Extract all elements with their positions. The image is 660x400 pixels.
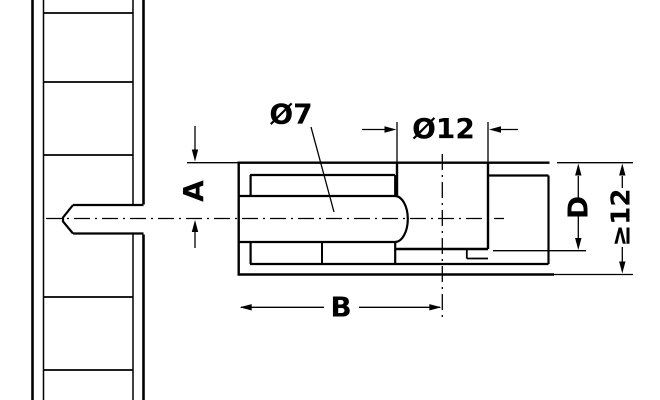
arrowhead-left (489, 126, 501, 132)
arrowhead-up (192, 220, 198, 232)
arrowhead-up (619, 164, 625, 176)
arrowhead-right (429, 304, 441, 310)
technical-drawing: A Ø7 Ø12 B D ≥12 (0, 0, 660, 400)
arrowhead-up (575, 164, 581, 176)
arrowhead-down (192, 150, 198, 162)
arrowhead-right (385, 126, 397, 132)
label-axis-distance: A (177, 180, 210, 202)
label-bolt-hole-diameter: Ø7 (269, 98, 312, 131)
label-cam-hole-diameter: Ø12 (412, 112, 475, 145)
centerlines (46, 154, 504, 317)
bolt-tip (63, 205, 144, 234)
label-min-panel-thickness: ≥12 (607, 189, 637, 247)
drawing-canvas: A Ø7 Ø12 B D ≥12 (0, 0, 660, 400)
label-drilling-depth: D (562, 196, 595, 219)
arrowhead-down (575, 238, 581, 250)
bolt-hole-callout (311, 127, 334, 212)
arrowhead-left (240, 304, 252, 310)
wall-panel (33, 0, 144, 400)
leader-line (311, 127, 334, 212)
wall-core-lines (44, 13, 133, 370)
arrowhead-down (619, 262, 625, 274)
label-bolt-length: B (330, 291, 351, 324)
